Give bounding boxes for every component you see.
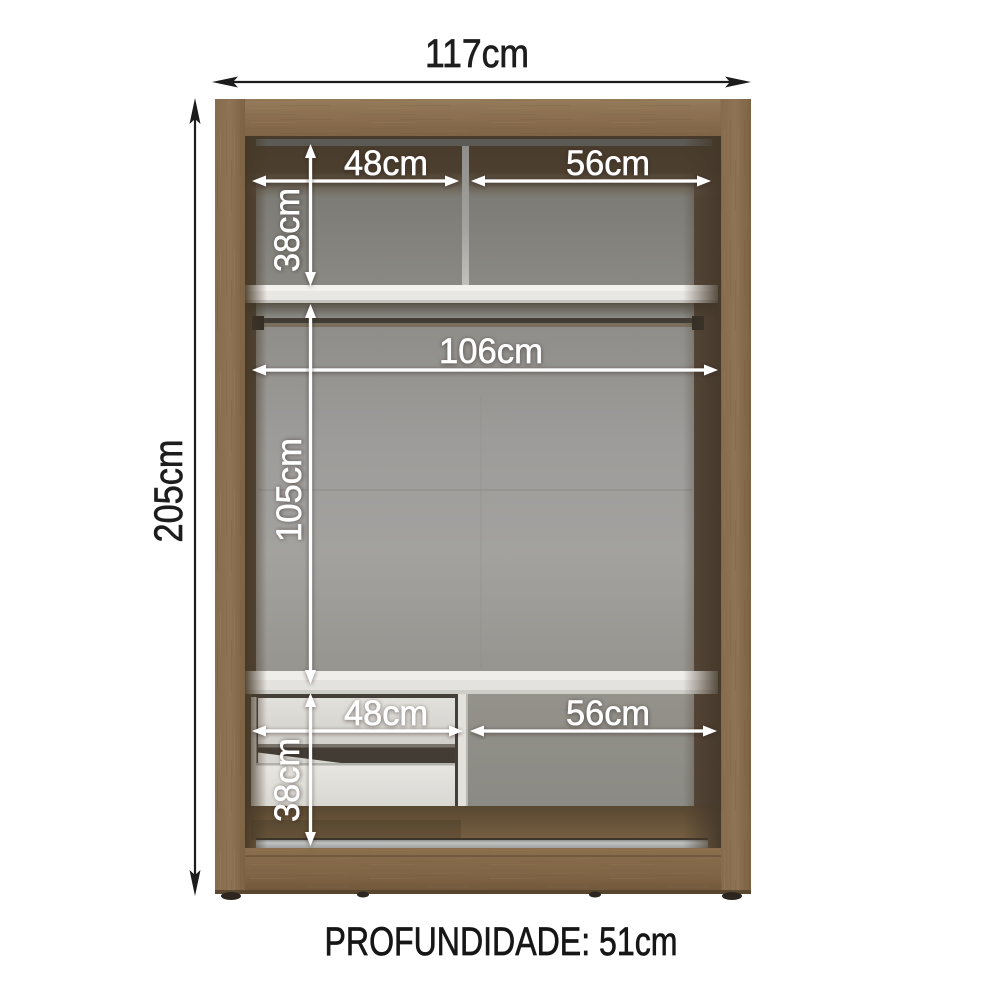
svg-text:38cm: 38cm (268, 188, 307, 272)
svg-text:PROFUNDIDADE: 51cm: PROFUNDIDADE: 51cm (325, 920, 678, 964)
svg-text:106cm: 106cm (439, 332, 543, 371)
svg-text:48cm: 48cm (344, 694, 428, 733)
svg-text:38cm: 38cm (268, 738, 307, 822)
svg-text:205cm: 205cm (147, 440, 191, 543)
svg-text:56cm: 56cm (566, 694, 650, 733)
svg-text:105cm: 105cm (270, 438, 309, 542)
svg-text:117cm: 117cm (425, 32, 529, 76)
svg-text:48cm: 48cm (344, 144, 428, 183)
svg-text:56cm: 56cm (566, 144, 650, 183)
